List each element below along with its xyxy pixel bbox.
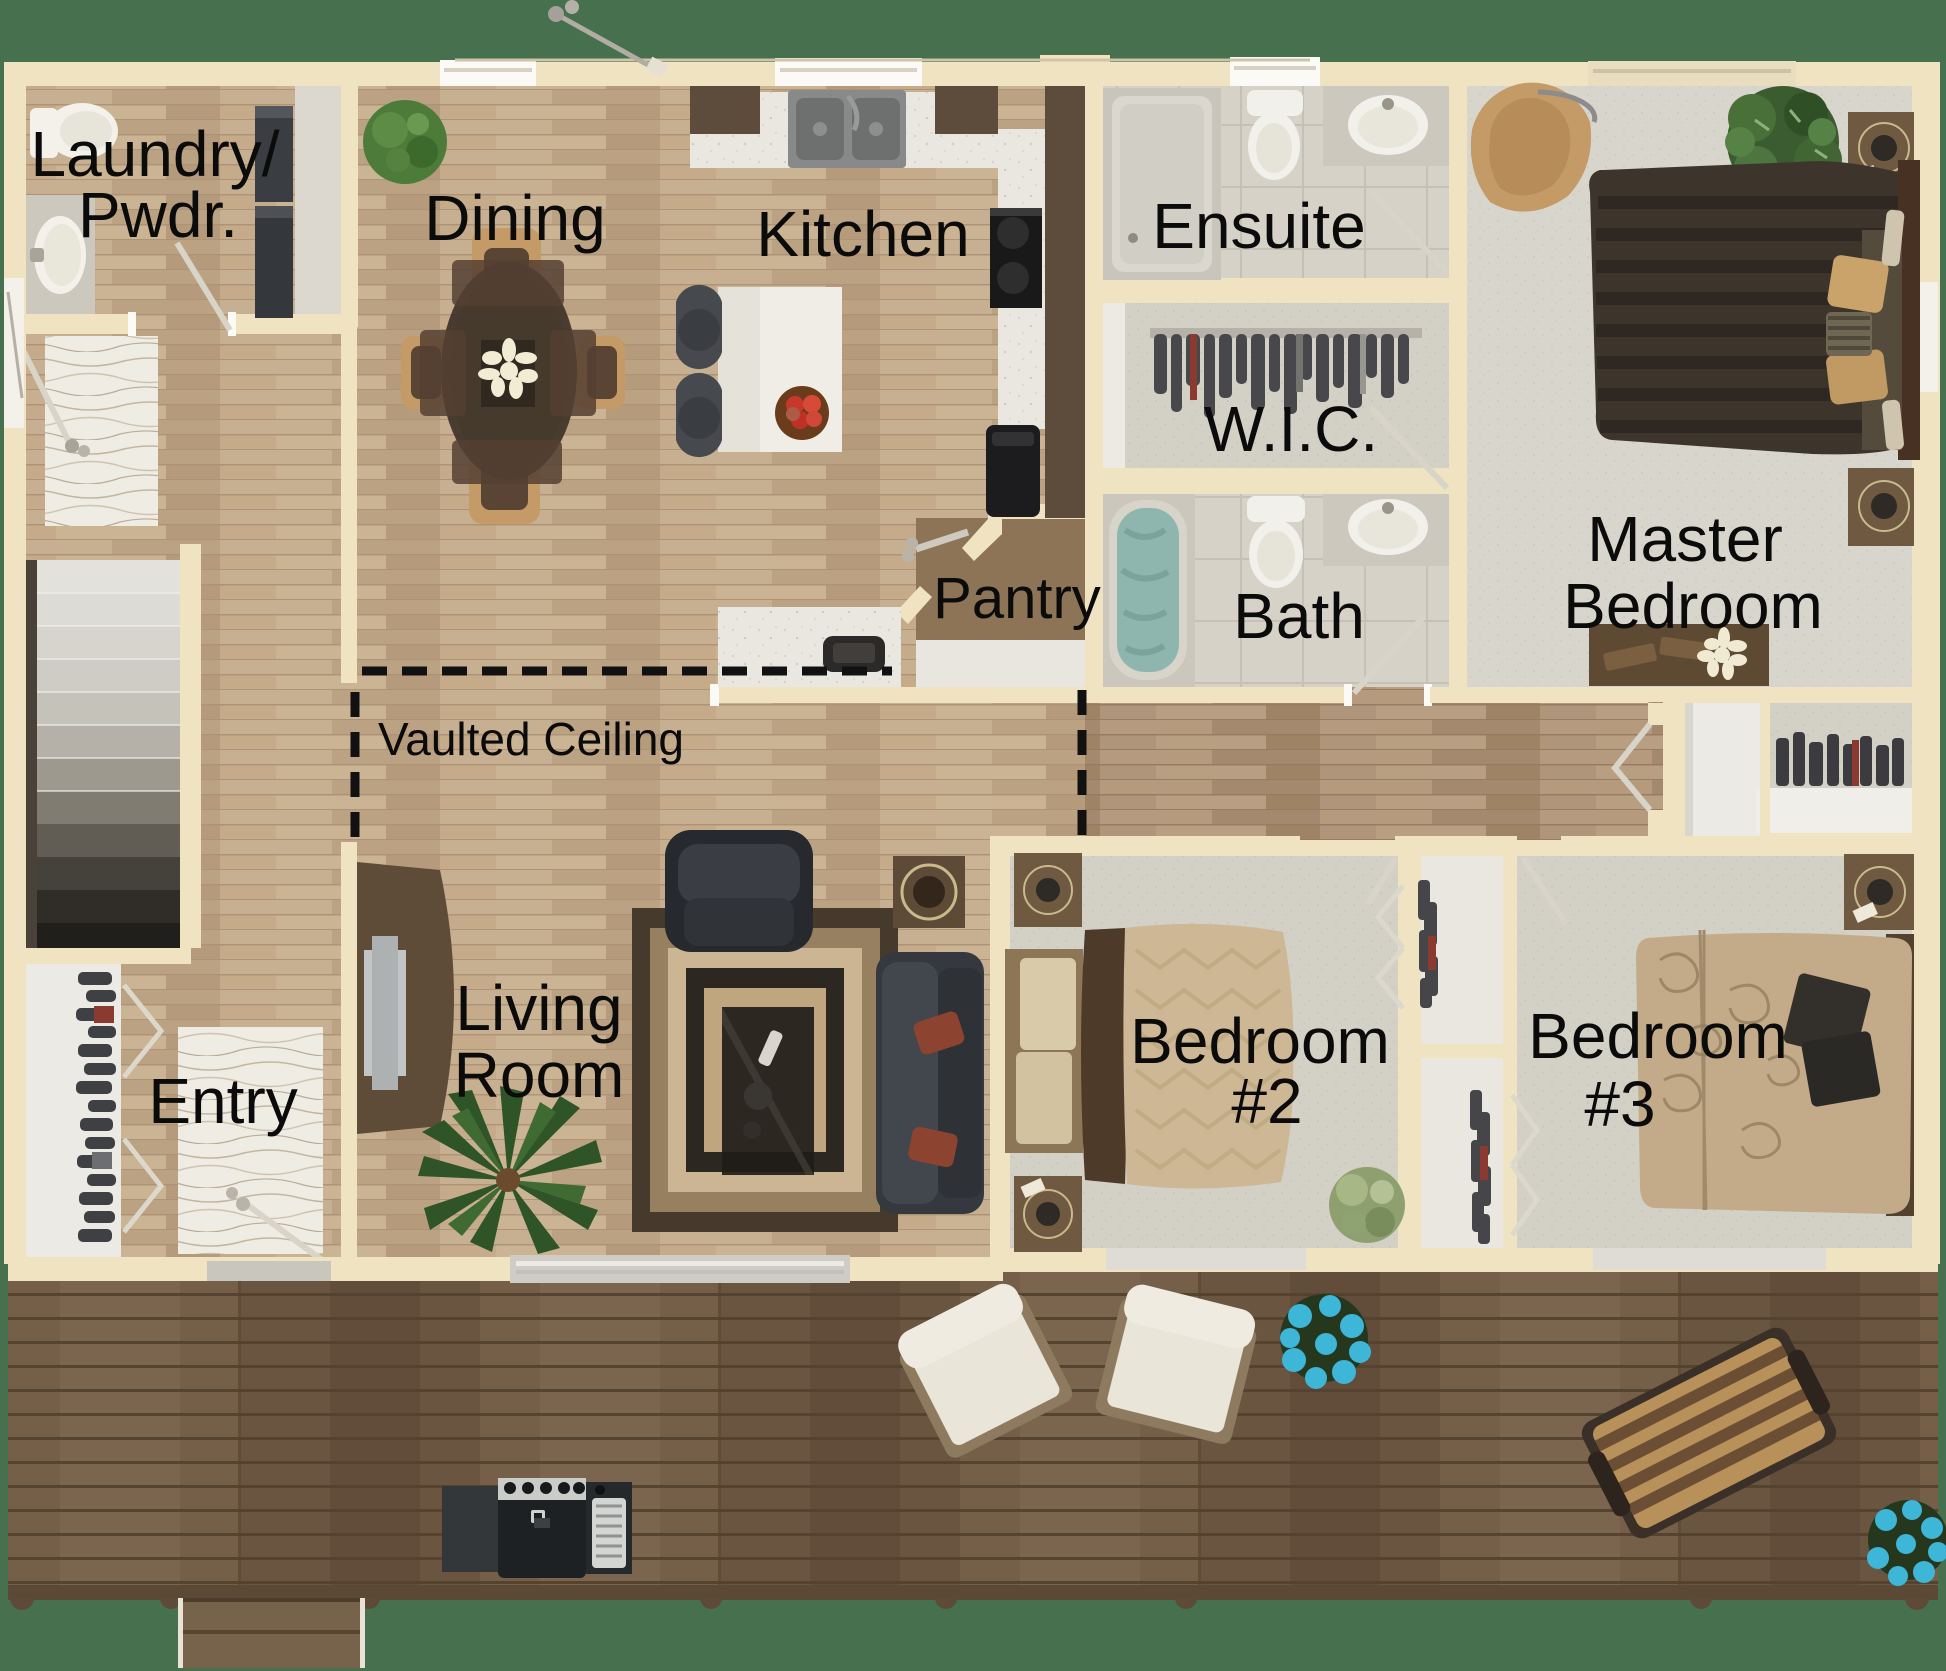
svg-text:#3: #3: [1584, 1068, 1655, 1140]
svg-text:Entry: Entry: [148, 1065, 297, 1137]
svg-text:Vaulted Ceiling: Vaulted Ceiling: [378, 713, 684, 765]
svg-text:Room: Room: [454, 1039, 625, 1111]
svg-text:Living: Living: [455, 972, 622, 1044]
svg-text:#2: #2: [1231, 1065, 1302, 1137]
svg-text:W.I.C.: W.I.C.: [1204, 393, 1378, 465]
svg-text:Master: Master: [1587, 503, 1783, 575]
svg-text:Bath: Bath: [1233, 580, 1365, 652]
svg-text:Pantry: Pantry: [933, 566, 1101, 631]
svg-text:Pwdr.: Pwdr.: [78, 179, 238, 251]
svg-text:Dining: Dining: [424, 182, 605, 254]
svg-text:Bedroom: Bedroom: [1563, 570, 1823, 642]
svg-text:Bedroom: Bedroom: [1528, 1000, 1788, 1072]
svg-text:Ensuite: Ensuite: [1152, 190, 1365, 262]
svg-text:Kitchen: Kitchen: [756, 198, 969, 270]
